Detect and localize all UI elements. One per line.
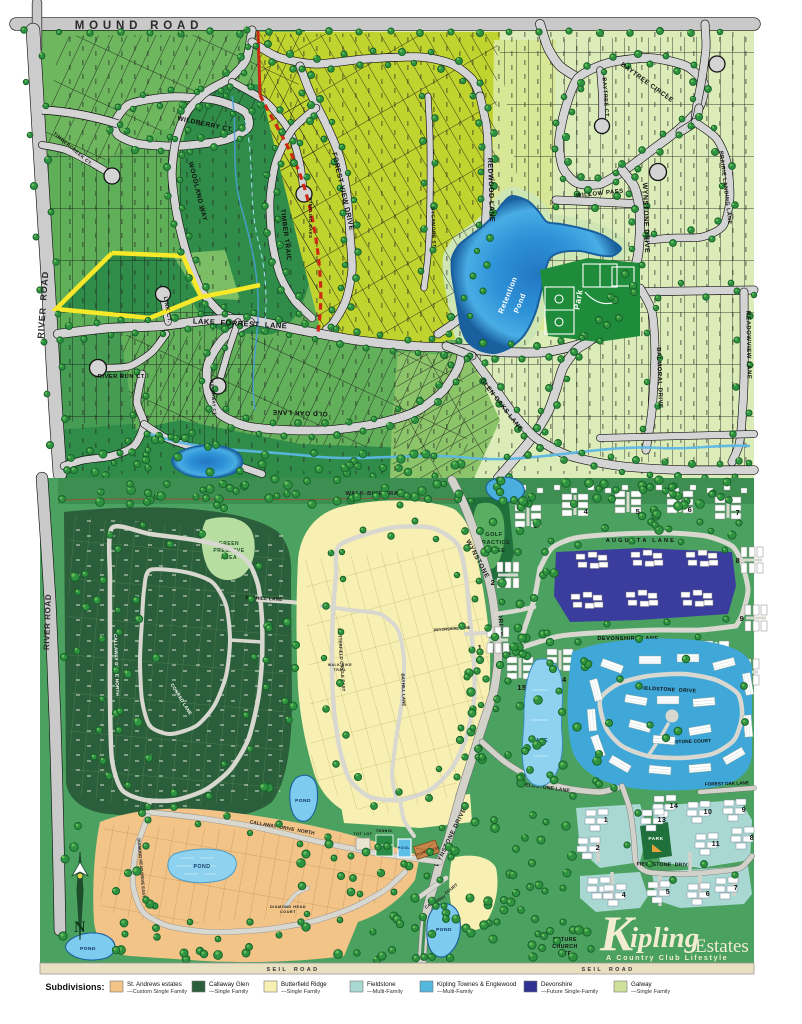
svg-text:POND: POND	[295, 798, 311, 804]
svg-text:N: N	[74, 919, 86, 936]
svg-text:9: 9	[742, 807, 746, 814]
svg-text:S E I L R O A D: S E I L R O A D	[267, 967, 318, 973]
svg-text:6: 6	[706, 891, 710, 898]
svg-text:Fieldstone: Fieldstone	[367, 981, 396, 988]
svg-text:Kipling Townes & Englewood: Kipling Townes & Englewood	[437, 981, 517, 988]
svg-text:2: 2	[596, 845, 600, 852]
svg-text:FIELDSTONE DRIVE: FIELDSTONE DRIVE	[637, 862, 692, 869]
svg-text:COURT: COURT	[280, 910, 296, 914]
svg-text:—Single Family: —Single Family	[281, 989, 320, 995]
svg-text:STERLING OAKS: STERLING OAKS	[308, 198, 313, 239]
svg-text:8: 8	[750, 835, 754, 842]
svg-text:—Custom Single Family: —Custom Single Family	[127, 989, 187, 995]
svg-text:Subdivisions:: Subdivisions:	[45, 982, 104, 992]
svg-text:Butterfield Ridge: Butterfield Ridge	[281, 981, 327, 988]
svg-text:11: 11	[712, 841, 720, 848]
svg-text:ipling: ipling	[630, 922, 699, 954]
svg-text:9: 9	[740, 614, 745, 623]
svg-text:—Single Family: —Single Family	[631, 989, 670, 995]
svg-text:7: 7	[734, 885, 738, 892]
svg-text:—Multi-Family: —Multi-Family	[367, 989, 403, 995]
svg-text:2: 2	[491, 578, 496, 587]
svg-text:TENNIS: TENNIS	[376, 829, 392, 833]
svg-text:DIAMOND HEAD: DIAMOND HEAD	[270, 905, 306, 909]
svg-text:4: 4	[584, 507, 589, 516]
svg-text:14: 14	[670, 803, 679, 810]
svg-text:10: 10	[704, 809, 713, 816]
svg-text:A U G U S T A L A N E: A U G U S T A L A N E	[606, 538, 674, 544]
svg-text:—Single Family: —Single Family	[209, 989, 248, 995]
svg-text:POND: POND	[80, 946, 96, 952]
svg-text:TRAIL: TRAIL	[334, 668, 347, 672]
svg-text:—Multi-Family: —Multi-Family	[437, 989, 473, 995]
svg-text:13: 13	[658, 817, 667, 824]
svg-text:4: 4	[622, 892, 626, 899]
svg-text:MEADOWVIEW LANE: MEADOWVIEW LANE	[744, 311, 751, 380]
svg-text:1: 1	[604, 817, 608, 824]
svg-text:A Country Club Lifestyle: A Country Club Lifestyle	[606, 953, 728, 962]
svg-text:POND: POND	[436, 927, 452, 933]
svg-text:5: 5	[666, 889, 670, 896]
svg-text:Galway: Galway	[631, 981, 653, 988]
svg-text:8: 8	[736, 556, 741, 565]
svg-text:Callaway Glen: Callaway Glen	[209, 981, 249, 988]
svg-text:POOL: POOL	[398, 846, 410, 850]
svg-text:WALK-BIKE: WALK-BIKE	[328, 663, 352, 667]
svg-text:RIVER RUN CT.: RIVER RUN CT.	[98, 374, 147, 380]
svg-text:TOT LOT: TOT LOT	[354, 832, 373, 836]
svg-text:M O U N D R O A D: M O U N D R O A D	[75, 20, 199, 32]
svg-text:7: 7	[736, 508, 741, 517]
svg-text:GOLF: GOLF	[485, 532, 503, 538]
svg-text:S E I L R O A D: S E I L R O A D	[582, 967, 633, 973]
svg-text:—Future Single-Family: —Future Single-Family	[541, 989, 598, 995]
svg-text:POND: POND	[194, 864, 211, 870]
svg-text:Devonshire: Devonshire	[541, 981, 573, 988]
svg-text:St. Andrews estates: St. Andrews estates	[127, 981, 182, 988]
svg-text:PARK: PARK	[648, 836, 663, 842]
